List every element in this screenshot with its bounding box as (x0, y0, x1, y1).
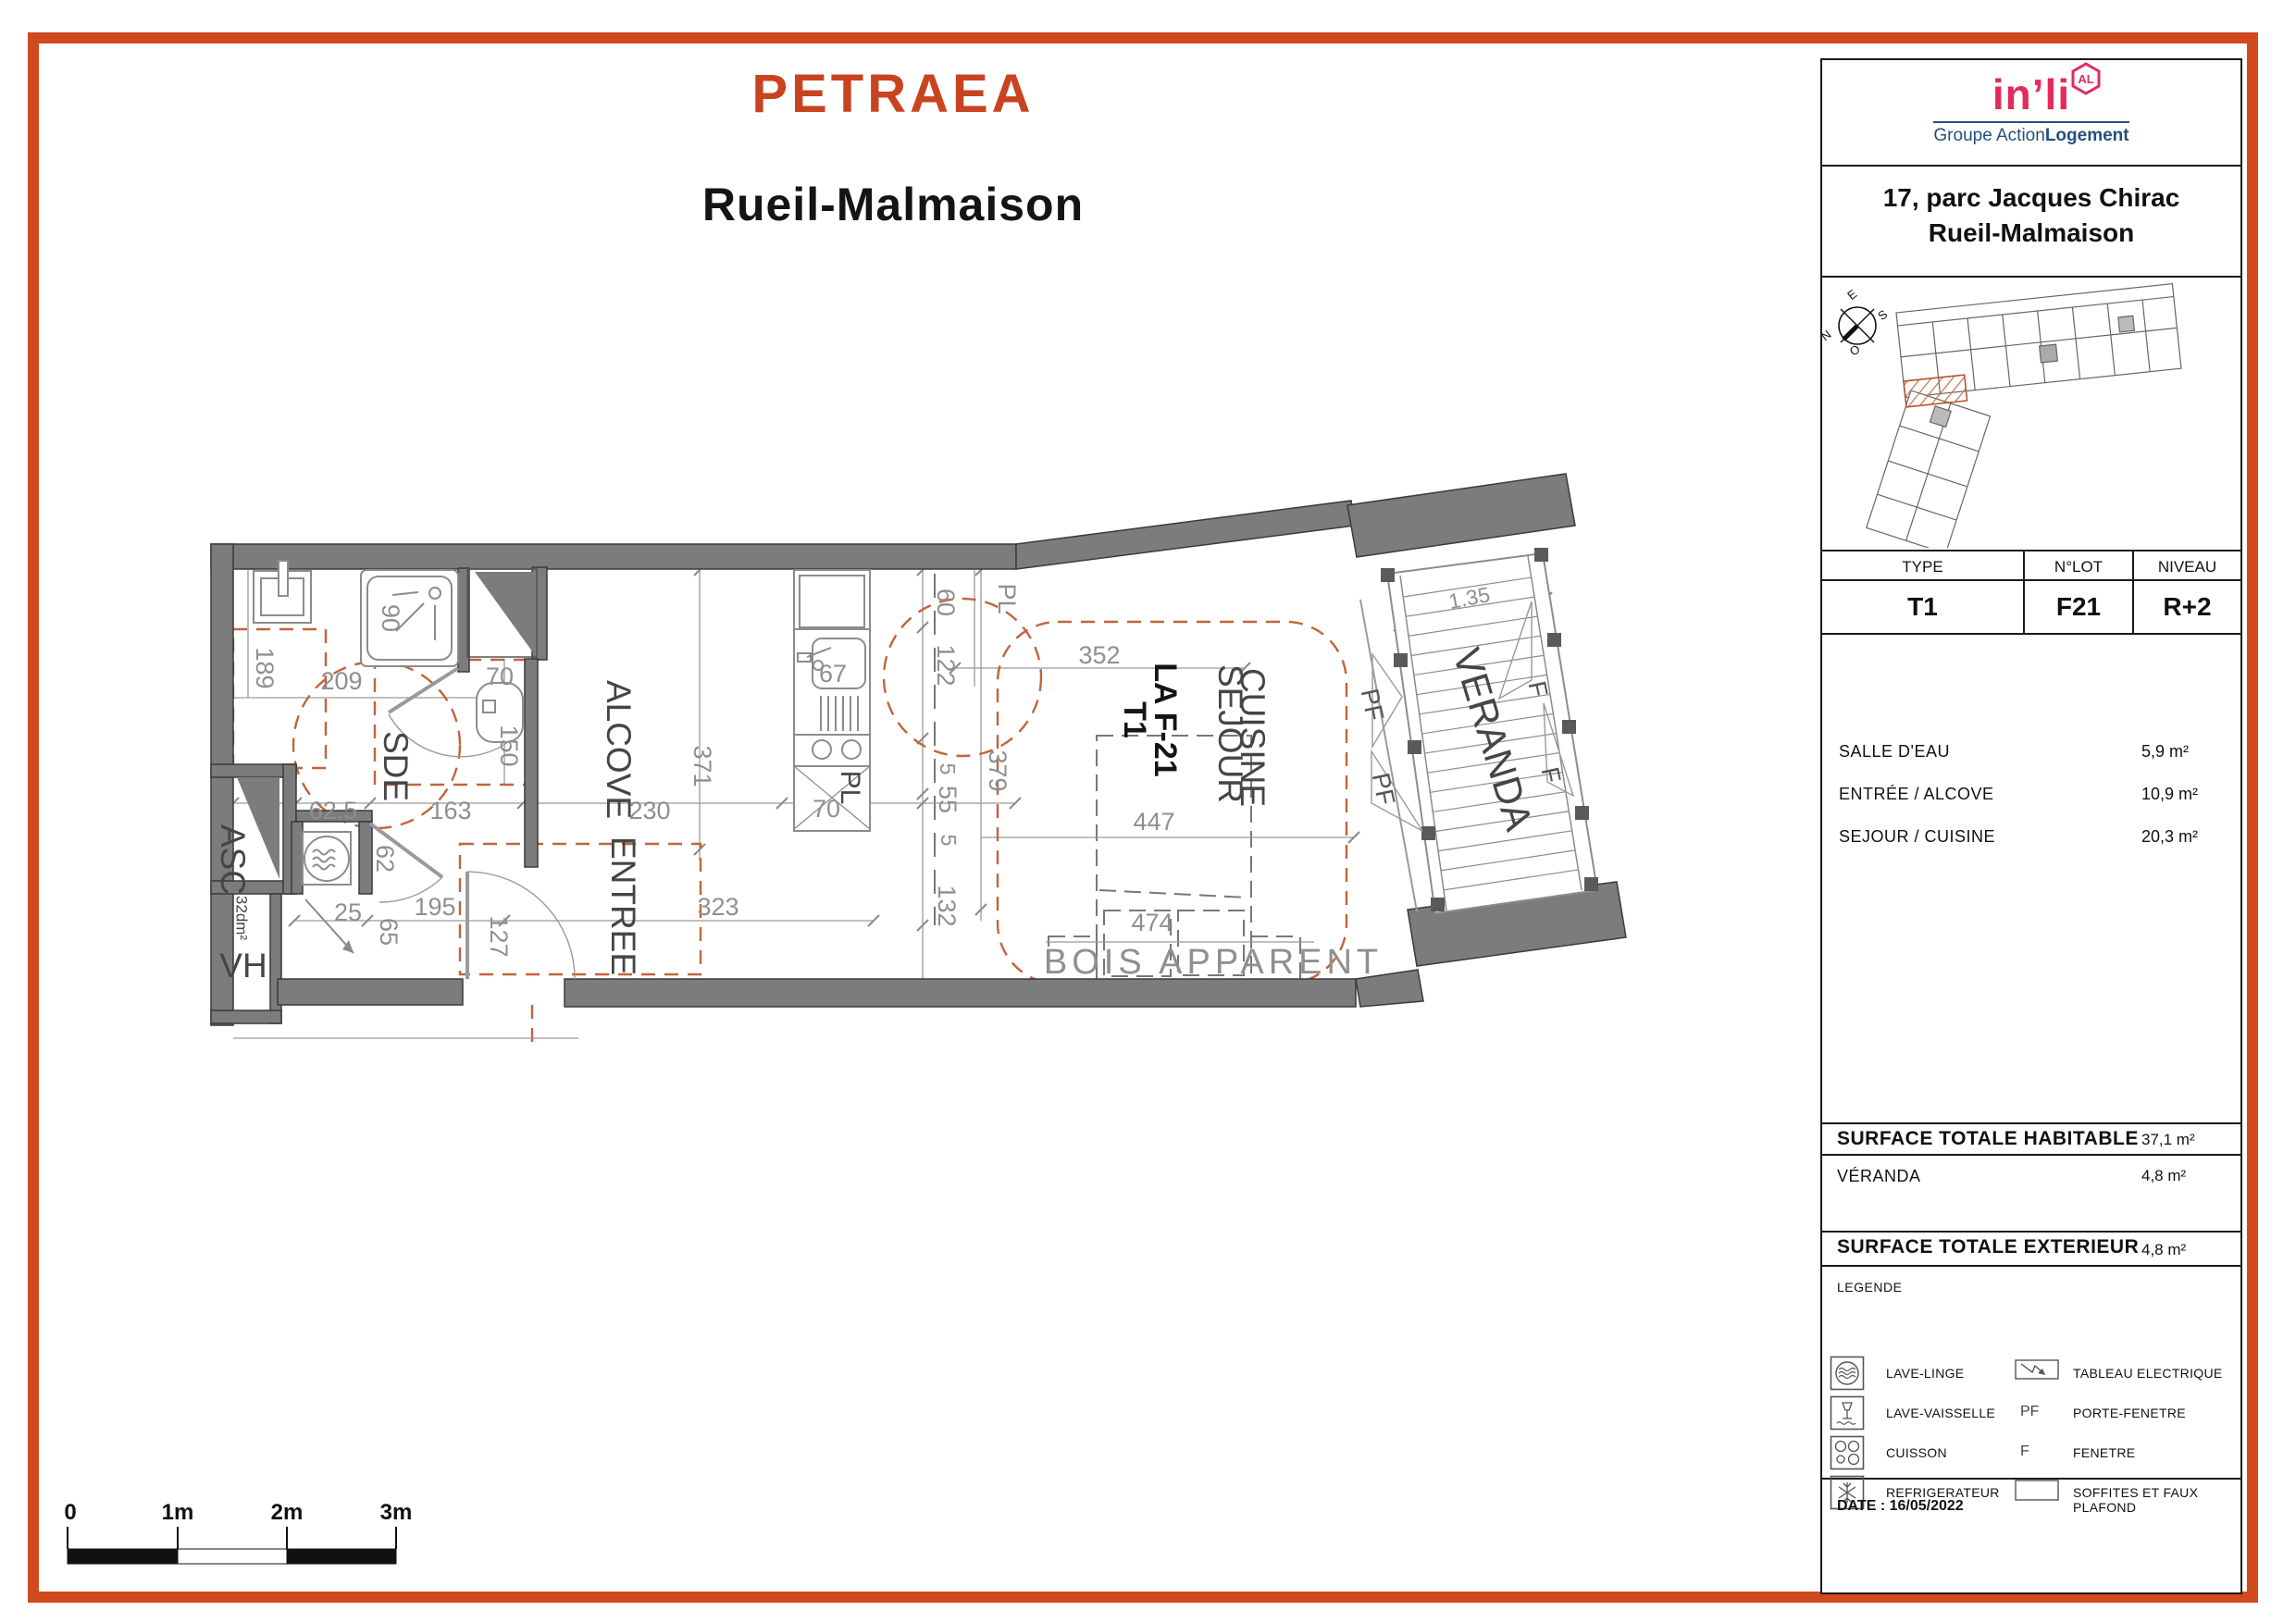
closet-label-small: PL (993, 583, 1021, 613)
scale-1m: 1m (162, 1500, 194, 1525)
dim-60: 60 (932, 588, 960, 616)
dim-189: 189 (251, 647, 279, 688)
val-lot: F21 (2025, 581, 2134, 633)
unit-type-label: T1 (1117, 701, 1152, 738)
date-section: DATE : 16/05/2022 (1822, 1480, 2240, 1594)
address-line1: 17, parc Jacques Chirac (1822, 183, 2240, 213)
dim-55: 55 (934, 786, 962, 813)
dim-195: 195 (414, 893, 455, 921)
pf-symbol: PF (2020, 1404, 2039, 1420)
vh-label: VH (219, 947, 267, 985)
shower-icon (361, 570, 458, 666)
veranda-area-row: VÉRANDA 4,8 m² (1822, 1156, 2240, 1233)
compass-s: S (1875, 307, 1890, 323)
dim-67: 67 (819, 660, 847, 688)
legend-title: LEGENDE (1837, 1280, 1902, 1295)
date-label: DATE : 16/05/2022 (1837, 1498, 1964, 1515)
surface-habitable-row: SURFACE TOTALE HABITABLE 37,1 m² (1822, 1124, 2240, 1156)
elevator-label: ASC (214, 824, 252, 895)
scale-0: 0 (64, 1500, 76, 1525)
compass-icon (1839, 307, 1876, 344)
dim-209: 209 (320, 667, 362, 695)
compass-e: E (1844, 287, 1859, 303)
scale-bar: 0 1m 2m 3m (64, 1500, 412, 1564)
address-line2: Rueil-Malmaison (1822, 218, 2240, 248)
dim-150: 150 (495, 725, 523, 766)
dim-323: 323 (697, 893, 738, 921)
dim-379: 379 (984, 750, 1011, 791)
col-lot: N°LOT (2025, 551, 2134, 581)
val-niveau: R+2 (2134, 581, 2240, 633)
site-plan-thumbnail: E S N O (1822, 278, 2240, 548)
logo-rule (1933, 121, 2129, 123)
dim-447: 447 (1133, 808, 1174, 836)
f-symbol: F (2020, 1443, 2029, 1460)
dim-5a: 5 (936, 763, 960, 775)
dim-163: 163 (429, 797, 471, 824)
svg-text:AL: AL (2078, 72, 2093, 86)
dim-70-pl: 70 (813, 795, 840, 823)
highlighted-unit (1904, 375, 1967, 407)
logo-section: in’li AL Groupe ActionLogement (1822, 60, 2240, 167)
unit-info-table: TYPE N°LOT NIVEAU T1 F21 R+2 (1822, 551, 2240, 635)
building-outline (1867, 284, 2181, 548)
room-label-sde: SDE (377, 731, 415, 801)
room-label-entree: ENTREE (604, 836, 642, 975)
shaft-area-label: 32dm² (233, 896, 251, 941)
bathroom-sink-icon (254, 561, 311, 623)
dim-474: 474 (1131, 909, 1173, 936)
dim-25: 25 (334, 898, 362, 926)
bois-apparent-label: BOIS APPARENT (1044, 943, 1383, 982)
dim-65: 65 (375, 918, 403, 946)
col-niveau: NIVEAU (2134, 551, 2240, 581)
title-block-panel: in’li AL Groupe ActionLogement 17, parc … (1820, 58, 2242, 1594)
cooktop-legend-icon (1830, 1435, 1865, 1470)
electric-panel-icon (2015, 1359, 2059, 1380)
dim-352: 352 (1078, 641, 1120, 669)
al-hexagon-icon: AL (2070, 62, 2102, 95)
dim-127: 127 (485, 915, 513, 957)
dim-62-5: 62.5 (309, 797, 358, 824)
dim-122: 122 (932, 644, 960, 686)
dim-90: 90 (377, 604, 404, 632)
inli-logo: in’li (1992, 70, 2070, 118)
dim-230: 230 (628, 797, 670, 824)
washing-machine-legend-icon (1830, 1356, 1865, 1391)
scale-3m: 3m (380, 1500, 413, 1525)
address-section: 17, parc Jacques Chirac Rueil-Malmaison (1822, 167, 2240, 278)
pf-label-1: PF (1356, 687, 1390, 724)
col-type: TYPE (1822, 551, 2025, 581)
dim-70-wc: 70 (486, 663, 514, 690)
washing-machine-icon (303, 832, 351, 885)
room-label-cuisine: CUISINE (1234, 668, 1272, 807)
room-areas-section: SALLE D'EAU 5,9 m² ENTRÉE / ALCOVE 10,9 … (1822, 635, 2240, 1124)
dim-62: 62 (371, 845, 399, 873)
site-plan-section: E S N O (1822, 278, 2240, 551)
logo-group-name: Groupe ActionLogement (1822, 126, 2240, 146)
dim-371: 371 (689, 745, 716, 787)
dim-132: 132 (933, 885, 961, 926)
scale-2m: 2m (271, 1500, 304, 1525)
dim-5b: 5 (937, 835, 961, 847)
surface-exterieur-row: SURFACE TOTALE EXTERIEUR 4,8 m² (1822, 1233, 2240, 1267)
compass-n: N (1822, 328, 1834, 344)
dishwasher-legend-icon (1830, 1395, 1865, 1431)
floorplan-sheet: PETRAEA Rueil-Malmaison (0, 0, 2296, 1623)
val-type: T1 (1822, 581, 2025, 633)
legend-section: LEGENDE LAVE-LINGE TABLEAU ELECTRIQUE (1822, 1267, 2240, 1480)
